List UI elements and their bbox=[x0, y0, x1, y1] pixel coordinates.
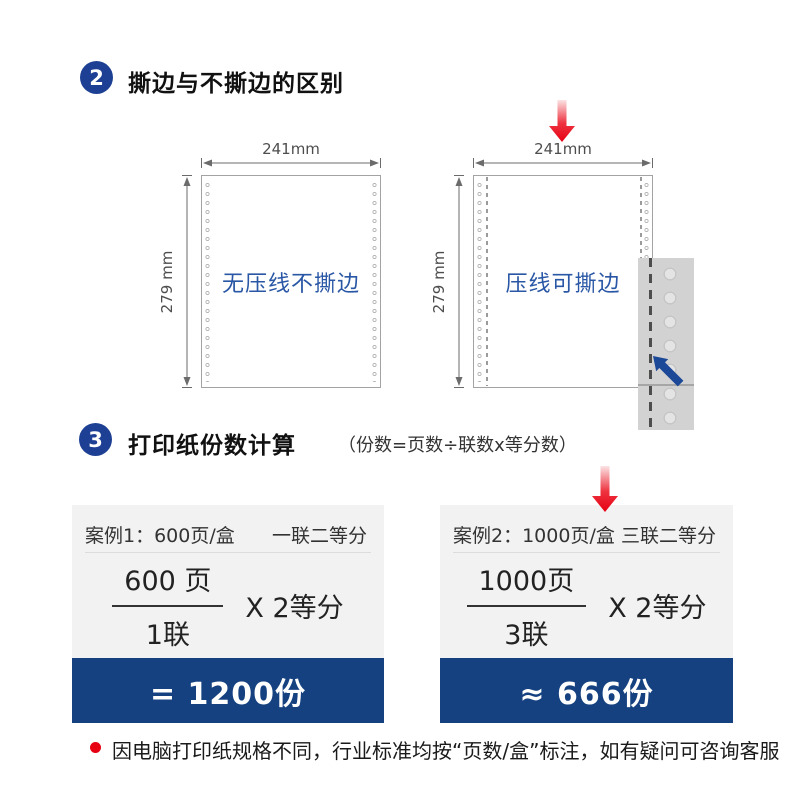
section2-number: 2 bbox=[89, 66, 104, 90]
paper-right-tractor-holes-left bbox=[477, 181, 482, 382]
paper-sheet-no-tear: 无压线不撕边 bbox=[201, 175, 381, 388]
case2-title: 案例2：1000页/盒 bbox=[453, 521, 615, 548]
section3-number-badge: 3 bbox=[79, 423, 112, 456]
case1-result-bar: = 1200份 bbox=[72, 658, 384, 723]
section3-number: 3 bbox=[88, 428, 103, 452]
paper-right-height-label: 279 mm bbox=[430, 242, 448, 322]
paper-left-width-label: 241mm bbox=[201, 140, 381, 158]
case2-box: 案例2：1000页/盒 三联二等分 1000页 3联 X 2等分 ≈ 666份 bbox=[440, 505, 733, 723]
case2-spec: 三联二等分 bbox=[621, 521, 716, 548]
section2-title: 撕边与不撕边的区别 bbox=[128, 64, 344, 98]
product-info-page: 2 撕边与不撕边的区别 241mm 无压线不撕边 279 mm 241mm bbox=[0, 0, 800, 800]
case2-header: 案例2：1000页/盒 三联二等分 bbox=[440, 505, 733, 548]
case1-header: 案例1：600页/盒 一联二等分 bbox=[72, 505, 384, 548]
case1-fraction: 600 页 1联 bbox=[112, 559, 223, 652]
case1-multiplier: X 2等分 bbox=[245, 586, 343, 625]
case2-formula: 1000页 3联 X 2等分 bbox=[440, 552, 733, 658]
case2-multiplier: X 2等分 bbox=[608, 586, 706, 625]
case2-denominator: 3联 bbox=[467, 607, 587, 652]
paper-right-height-dimension-arrow-icon bbox=[453, 175, 465, 388]
blue-pointer-arrow-icon bbox=[643, 348, 695, 396]
paper-left-width-dimension-arrow-icon bbox=[201, 157, 381, 169]
section3-title: 打印纸份数计算 bbox=[128, 426, 296, 460]
magnified-crease-dashed-line bbox=[649, 258, 652, 430]
case2-result: ≈ 666份 bbox=[519, 669, 653, 713]
case2-result-bar: ≈ 666份 bbox=[440, 658, 733, 723]
paper-sheet-tearable: 压线可撕边 bbox=[473, 175, 653, 388]
paper-left-height-label: 279 mm bbox=[158, 242, 176, 322]
case1-title: 案例1：600页/盒 bbox=[85, 521, 235, 548]
case1-box: 案例1：600页/盒 一联二等分 600 页 1联 X 2等分 = 1200份 bbox=[72, 505, 384, 723]
paper-left-text: 无压线不撕边 bbox=[222, 266, 360, 298]
paper-left-tractor-holes-left bbox=[205, 181, 210, 382]
case1-spec: 一联二等分 bbox=[272, 521, 367, 548]
footnote-text: 因电脑打印纸规格不同，行业标准均按“页数/盒”标注，如有疑问可咨询客服 bbox=[112, 735, 779, 764]
case1-result: = 1200份 bbox=[150, 669, 306, 713]
paper-left-height-dimension-arrow-icon bbox=[181, 175, 193, 388]
case2-numerator: 1000页 bbox=[467, 559, 587, 607]
paper-right-crease-line-left bbox=[486, 177, 488, 386]
paper-right-width-label: 241mm bbox=[473, 140, 653, 158]
magnified-tractor-holes bbox=[663, 262, 677, 426]
case1-top: 案例1：600页/盒 一联二等分 600 页 1联 X 2等分 bbox=[72, 505, 384, 658]
case1-numerator: 600 页 bbox=[112, 559, 223, 607]
case1-formula: 600 页 1联 X 2等分 bbox=[72, 552, 384, 658]
footnote-bullet-icon bbox=[90, 742, 101, 753]
case1-denominator: 1联 bbox=[112, 607, 223, 652]
section2-number-badge: 2 bbox=[80, 61, 113, 94]
case2-fraction: 1000页 3联 bbox=[467, 559, 587, 652]
red-down-arrow2-icon bbox=[592, 466, 618, 512]
section3-formula-note: （份数=页数÷联数x等分数） bbox=[338, 431, 577, 457]
paper-right-width-dimension-arrow-icon bbox=[473, 157, 653, 169]
paper-right-text: 压线可撕边 bbox=[505, 266, 620, 298]
red-down-arrow-icon bbox=[549, 100, 575, 142]
paper-left-tractor-holes-right bbox=[372, 181, 377, 382]
case2-top: 案例2：1000页/盒 三联二等分 1000页 3联 X 2等分 bbox=[440, 505, 733, 658]
